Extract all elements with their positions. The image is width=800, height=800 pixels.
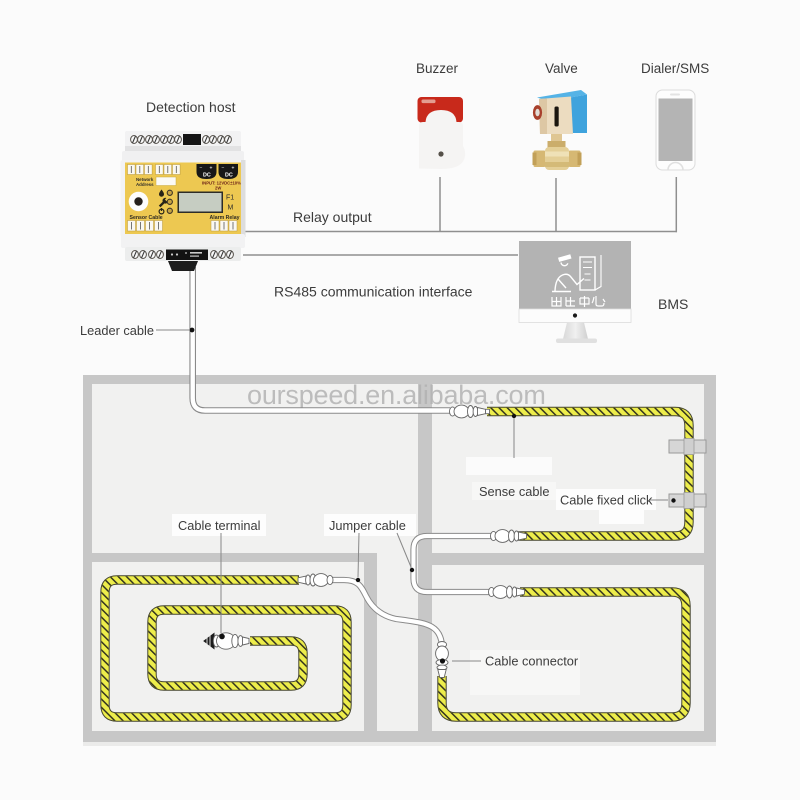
svg-text:Detection host: Detection host [146, 99, 236, 115]
svg-text:ourspeed.en.alibaba.com: ourspeed.en.alibaba.com [247, 380, 546, 410]
svg-text:DC: DC [225, 173, 233, 179]
svg-text:Relay output: Relay output [293, 209, 372, 225]
svg-text:Address: Address [136, 182, 154, 187]
svg-text:−: − [222, 166, 225, 172]
svg-text:+: + [232, 166, 235, 172]
svg-text:Cable fixed click: Cable fixed click [560, 493, 653, 508]
svg-text:DC: DC [203, 173, 211, 179]
svg-text:Buzzer: Buzzer [416, 61, 459, 76]
svg-text:F1: F1 [226, 195, 234, 202]
svg-text:Leader cable: Leader cable [80, 323, 154, 338]
svg-text:Sensor Cable: Sensor Cable [130, 215, 163, 221]
svg-text:−: − [200, 166, 203, 172]
svg-text:Jumper cable: Jumper cable [329, 518, 406, 533]
svg-text:M: M [228, 205, 234, 212]
svg-text:+: + [210, 166, 213, 172]
svg-text:Sense cable: Sense cable [479, 484, 549, 499]
svg-text:2W: 2W [215, 186, 221, 191]
svg-text:Dialer/SMS: Dialer/SMS [641, 61, 709, 76]
svg-text:INPUT: 12VDC±10%: INPUT: 12VDC±10% [202, 181, 241, 186]
svg-text:RS485 communication interface: RS485 communication interface [274, 284, 473, 300]
svg-text:Alarm Relay: Alarm Relay [210, 215, 240, 221]
svg-text:Valve: Valve [545, 61, 578, 76]
svg-text:Cable terminal: Cable terminal [178, 518, 261, 533]
svg-text:Cable connector: Cable connector [485, 654, 579, 669]
svg-text:BMS: BMS [658, 296, 688, 312]
